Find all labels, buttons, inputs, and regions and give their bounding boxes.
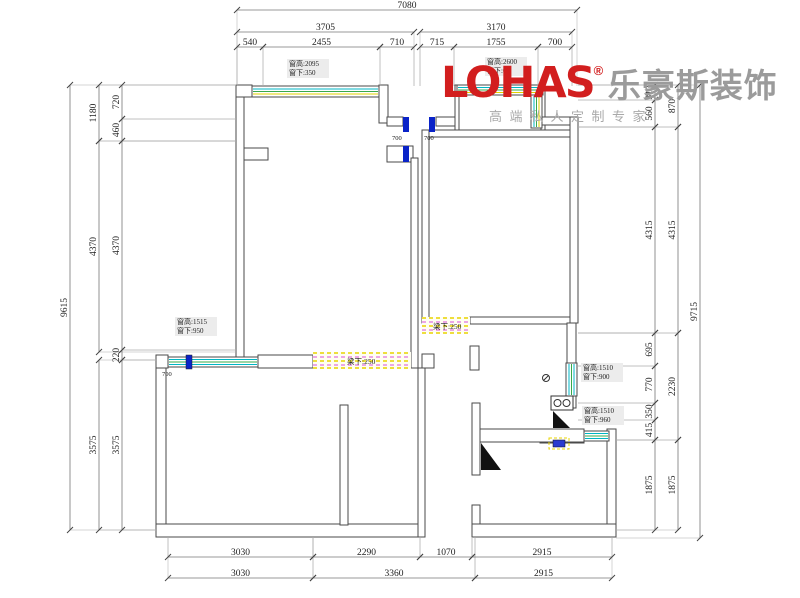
door-jamb (429, 117, 435, 132)
window-height-label: 窗高:1510 (583, 363, 613, 372)
window-sill-label: 窗下:350 (289, 68, 316, 77)
dimension-text: 540 (243, 38, 258, 48)
opening-width-label: 700 (392, 135, 402, 142)
dimension-text: 4315 (668, 220, 678, 239)
shaft-symbol (481, 443, 501, 470)
dimension-text: 770 (645, 377, 655, 392)
dimension-text: 310 (645, 85, 655, 100)
window-top-left (252, 86, 379, 97)
dimension-text: 460 (112, 123, 122, 138)
shaft-symbol (553, 411, 570, 428)
beam-height-label: 梁下:250 (347, 357, 376, 366)
dimension-text: 4370 (89, 237, 99, 256)
dimension-text: 560 (645, 106, 655, 121)
window-sill-label: 窗下:900 (583, 372, 610, 381)
beam-height-label: 梁下:250 (433, 322, 462, 331)
dimension-text: 220 (112, 348, 122, 363)
floorplan-page: { "logo": { "brand": "LOHAS", "reg": "®"… (0, 0, 800, 598)
dimension-text: 3030 (231, 569, 250, 579)
dimension-text: 9715 (690, 302, 700, 321)
window-top-right (457, 85, 543, 128)
dimension-text: 710 (390, 38, 405, 48)
dimension-text: 695 (645, 342, 655, 357)
dimension-text: 1875 (668, 475, 678, 494)
windows-group (168, 85, 609, 441)
door-jamb (403, 146, 409, 162)
annotation-labels: 窗高:2095窗下:350窗高:2600窗下:0窗高:1515窗下:950窗高:… (162, 57, 624, 425)
dimension-text: 1875 (645, 475, 655, 494)
window-height-label: 窗高:2095 (289, 59, 319, 68)
floor-drain-icon (543, 375, 550, 382)
dimension-text: 9615 (60, 298, 70, 317)
dimension-text: 1755 (487, 38, 506, 48)
dimension-text: 720 (112, 95, 122, 110)
dimension-text: 3170 (487, 23, 506, 33)
dimension-text: 3360 (385, 569, 404, 579)
dimension-text: 3575 (89, 435, 99, 454)
dimension-text: 2230 (668, 377, 678, 396)
window-height-label: 窗高:1510 (584, 406, 614, 415)
stove-symbol (551, 396, 573, 410)
dimension-text: 700 (548, 38, 563, 48)
door-jamb (403, 117, 409, 132)
window-height-label: 窗高:1515 (177, 317, 207, 326)
dimension-text: 7080 (398, 1, 417, 11)
dimension-text: 4370 (112, 236, 122, 255)
dimension-text: 415 (645, 423, 655, 438)
dimension-text: 715 (430, 38, 445, 48)
opening-width-label: 700 (162, 371, 172, 378)
dimension-text: 2455 (312, 38, 331, 48)
dimension-text: 3030 (231, 548, 250, 558)
window-left-middle (168, 355, 258, 369)
dimension-text: 1180 (89, 103, 99, 122)
floorplan-canvas: 7080370531705402455710715175570030302290… (0, 0, 800, 598)
fixtures-group (481, 375, 573, 471)
window-sill-label: 窗下:960 (584, 415, 611, 424)
dimension-text: 2290 (357, 548, 376, 558)
dimension-text: 3575 (112, 435, 122, 454)
dimension-text: 2915 (533, 548, 552, 558)
dimension-text: 870 (668, 99, 678, 114)
dimension-text: 350 (645, 404, 655, 419)
dimension-text: 2915 (534, 569, 553, 579)
window-height-label: 窗高:2600 (487, 57, 517, 66)
window-sill-label: 窗下:0 (487, 66, 507, 75)
walls-group (156, 85, 616, 537)
window-sill-label: 窗下:950 (177, 326, 204, 335)
dimension-text: 3705 (316, 23, 335, 33)
window-bottom-right (584, 431, 609, 441)
opening-width-label: 700 (424, 135, 434, 142)
dimension-text: 1070 (437, 548, 456, 558)
window-right-middle (566, 363, 577, 396)
dimension-text: 4315 (645, 220, 655, 239)
